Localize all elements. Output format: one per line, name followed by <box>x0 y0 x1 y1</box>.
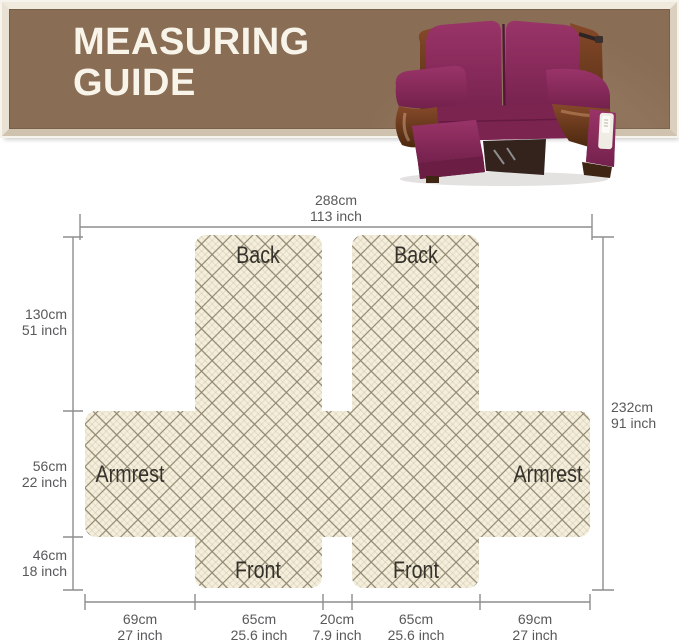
panel-label-front-right: Front <box>393 557 439 585</box>
measurement-bottom-3: 20cm 7.9 inch <box>312 611 361 640</box>
measurement-total-height-inch: 91 inch <box>611 415 656 431</box>
measurement-bottom-5-cm: 69cm <box>512 611 557 627</box>
measurement-back-height: 130cm 51 inch <box>3 306 67 338</box>
measurement-top-inch: 113 inch <box>310 208 362 224</box>
measurement-bottom-5-inch: 27 inch <box>512 627 557 640</box>
measurement-front-height-inch: 18 inch <box>3 563 67 579</box>
dimension-line-left <box>63 237 83 590</box>
dimension-line-bottom <box>85 594 590 610</box>
measurement-bottom-2-cm: 65cm <box>231 611 288 627</box>
measuring-guide-page: MEASURING GUIDE <box>0 0 679 640</box>
measurement-bottom-4-cm: 65cm <box>388 611 445 627</box>
measurement-front-height: 46cm 18 inch <box>3 547 67 579</box>
measurement-bottom-5: 69cm 27 inch <box>512 611 557 640</box>
measurement-total-height-cm: 232cm <box>611 399 656 415</box>
measurement-back-height-cm: 130cm <box>3 306 67 322</box>
measurement-armrest-height-cm: 56cm <box>3 458 67 474</box>
measuring-diagram <box>0 0 679 640</box>
measurement-bottom-2-inch: 25.6 inch <box>231 627 288 640</box>
measurement-armrest-height: 56cm 22 inch <box>3 458 67 490</box>
measurement-bottom-1-cm: 69cm <box>117 611 162 627</box>
panel-label-armrest-right: Armrest <box>514 461 583 489</box>
measurement-bottom-3-inch: 7.9 inch <box>312 627 361 640</box>
panel-label-back-right: Back <box>394 242 438 270</box>
measurement-top-cm: 288cm <box>310 192 362 208</box>
measurement-top-width: 288cm 113 inch <box>310 192 362 224</box>
measurement-armrest-height-inch: 22 inch <box>3 474 67 490</box>
measurement-bottom-3-cm: 20cm <box>312 611 361 627</box>
measurement-front-height-cm: 46cm <box>3 547 67 563</box>
measurement-bottom-2: 65cm 25.6 inch <box>231 611 288 640</box>
measurement-back-height-inch: 51 inch <box>3 322 67 338</box>
measurement-bottom-1: 69cm 27 inch <box>117 611 162 640</box>
measurement-bottom-1-inch: 27 inch <box>117 627 162 640</box>
measurement-bottom-4: 65cm 25.6 inch <box>388 611 445 640</box>
panel-label-back-left: Back <box>236 242 280 270</box>
measurement-total-height: 232cm 91 inch <box>611 399 656 431</box>
panel-label-armrest-left: Armrest <box>96 461 165 489</box>
panel-label-front-left: Front <box>235 557 281 585</box>
measurement-bottom-4-inch: 25.6 inch <box>388 627 445 640</box>
